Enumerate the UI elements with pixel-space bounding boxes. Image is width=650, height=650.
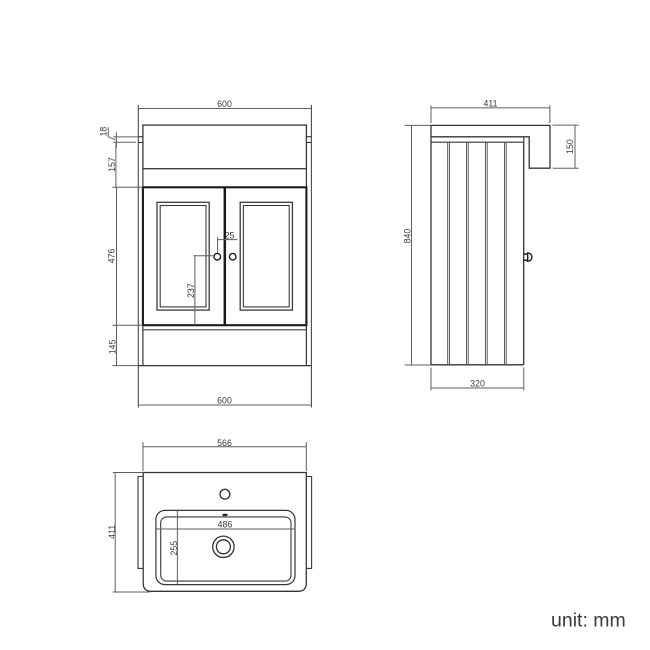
svg-text:411: 411 [107,525,117,539]
svg-text:145: 145 [108,339,118,354]
svg-text:150: 150 [565,139,575,154]
svg-text:157: 157 [107,157,117,172]
svg-text:237: 237 [186,283,196,298]
svg-text:18: 18 [99,127,109,137]
svg-text:25: 25 [225,230,235,240]
svg-text:unit: mm: unit: mm [551,609,626,631]
svg-text:411: 411 [483,99,497,109]
svg-text:476: 476 [107,248,117,263]
svg-text:566: 566 [217,438,232,448]
svg-text:600: 600 [217,99,232,109]
svg-text:600: 600 [217,396,232,406]
svg-text:255: 255 [169,541,179,556]
svg-text:320: 320 [470,379,485,389]
svg-text:840: 840 [402,229,412,244]
svg-text:486: 486 [218,520,233,530]
